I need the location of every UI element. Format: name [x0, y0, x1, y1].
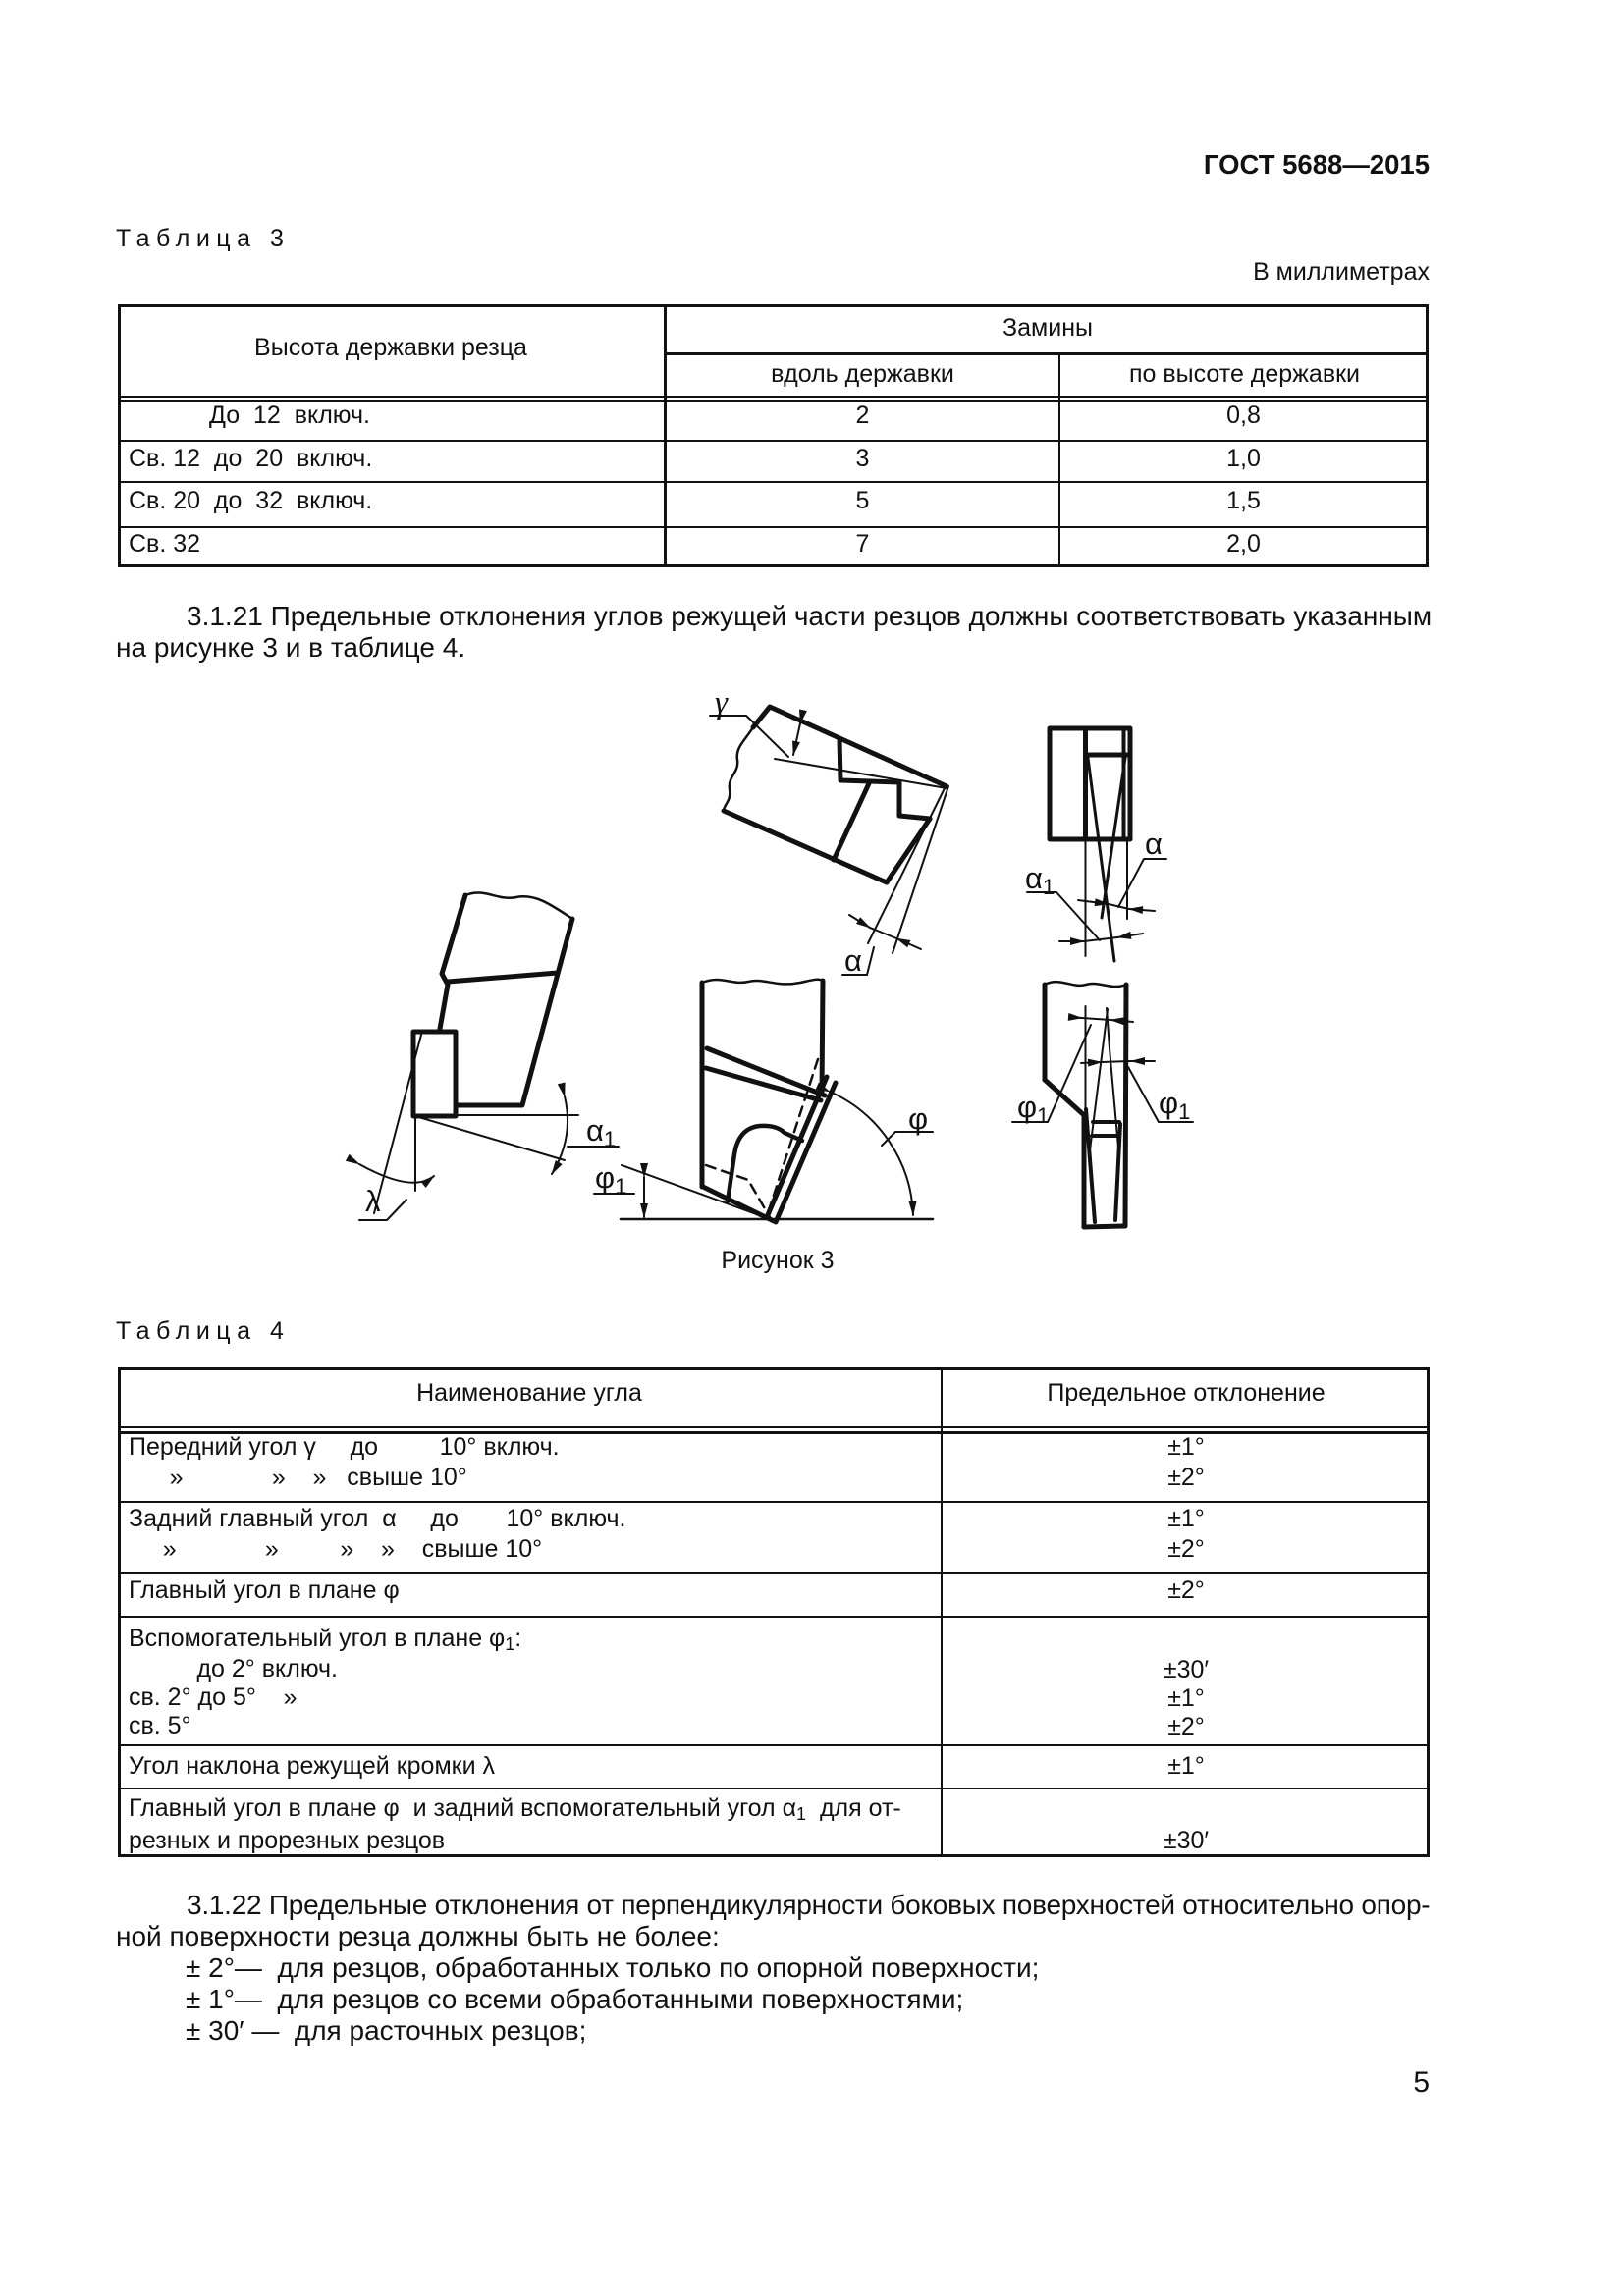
svg-text:α: α [1145, 827, 1163, 861]
svg-text:α: α [844, 943, 862, 978]
svg-text:λ: λ [365, 1184, 381, 1218]
svg-text:φ1: φ1 [1017, 1090, 1049, 1128]
svg-text:α1: α1 [1025, 861, 1055, 899]
svg-text:φ: φ [908, 1101, 928, 1136]
svg-text:γ: γ [715, 685, 729, 721]
svg-text:φ1: φ1 [1159, 1086, 1190, 1124]
